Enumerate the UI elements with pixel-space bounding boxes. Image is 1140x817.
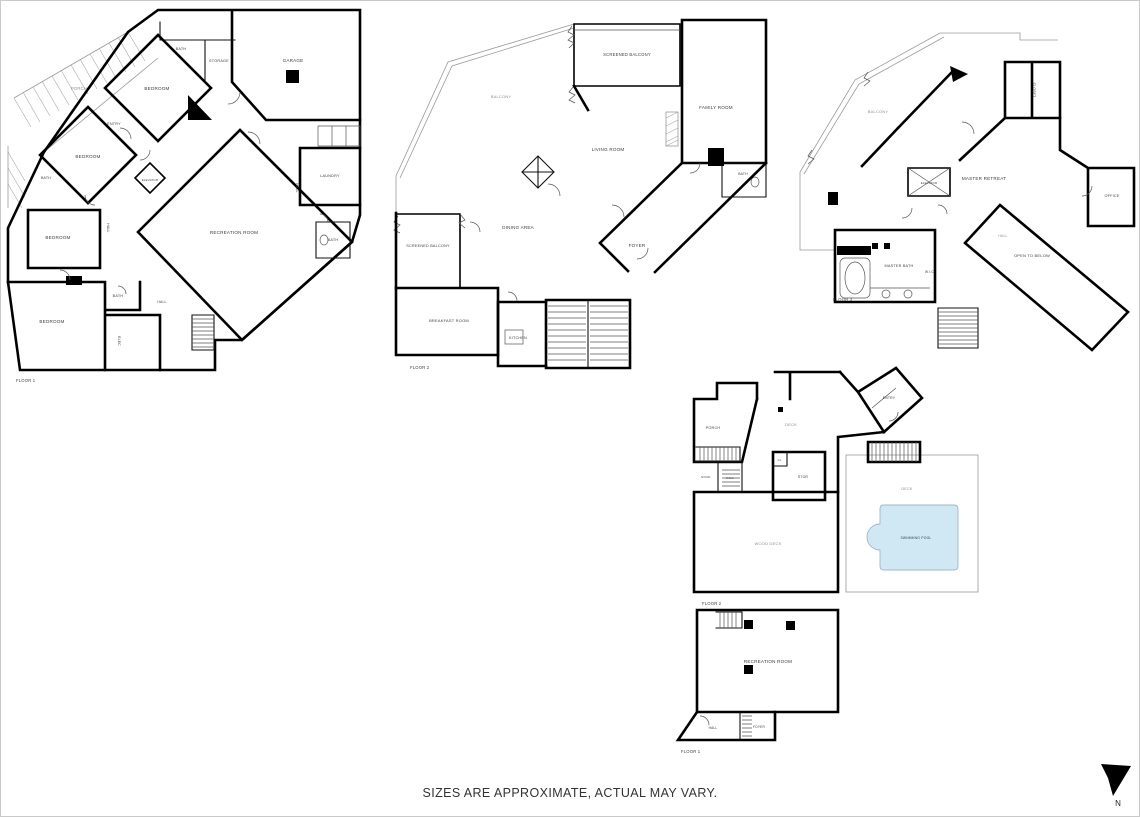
north-arrow-icon: N — [1101, 764, 1131, 808]
room-label: GARAGE — [283, 58, 304, 63]
room-label: PORCH — [706, 426, 721, 430]
room-label: HALL — [157, 300, 166, 304]
room-label: STORAGE — [209, 59, 229, 63]
room-label: SCREENED BALCONY — [406, 244, 450, 248]
room-label: ELEC — [117, 336, 121, 346]
room-label: DINING AREA — [502, 225, 535, 230]
room-label: ENTRY — [883, 396, 896, 400]
room-label: RECREATION ROOM — [210, 230, 258, 235]
room-label: BEDROOM — [75, 154, 100, 159]
room-label: FLOOR 1 — [16, 378, 36, 383]
north-label: N — [1115, 799, 1121, 808]
floorplan-sheet: PORCHBEDROOMBATHSTORAGEGARAGEENTRYBEDROO… — [0, 0, 1140, 817]
room-label: FAMILY ROOM — [699, 105, 733, 110]
room-label: LIVING ROOM — [592, 147, 625, 152]
room-label: ELEVATOR — [142, 178, 159, 182]
room-label: BALCONY — [868, 109, 889, 114]
room-label: RECREATION ROOM — [744, 659, 792, 664]
room-label: OFFICE — [1104, 194, 1119, 198]
room-label: STOR — [798, 475, 809, 479]
floor-plan-2: SCREENED BALCONYBALCONYFAMILY ROOMLIVING… — [394, 20, 766, 370]
floor-plan-3: BALCONYCLOSETELEVATORMASTER RETREATOFFIC… — [800, 33, 1134, 350]
room-label: BREAKFAST ROOM — [429, 318, 469, 323]
room-label: HALL — [709, 726, 718, 730]
room-label: ENTRY — [107, 122, 121, 126]
room-label: LAUNDRY — [320, 174, 340, 178]
room-label: WOOD DECK — [755, 541, 782, 546]
room-label: KITCHEN — [509, 336, 527, 340]
room-label: SCREENED BALCONY — [603, 52, 651, 57]
room-label: BATH — [738, 172, 748, 176]
room-label: MASTER BATH — [885, 264, 914, 268]
room-label: HALL — [106, 223, 110, 232]
room-label: STOR. — [701, 475, 711, 479]
room-label: PORCH — [71, 86, 87, 91]
room-label: OPEN TO BELOW — [1014, 253, 1050, 258]
room-label: MASTER RETREAT — [962, 176, 1006, 181]
room-label: FLOOR 3 — [833, 297, 853, 302]
disclaimer-text: SIZES ARE APPROXIMATE, ACTUAL MAY VARY. — [422, 786, 717, 800]
room-label: BATH — [113, 294, 124, 298]
room-label: BEDROOM — [45, 235, 70, 240]
room-label: HALL — [295, 183, 299, 192]
room-label: W.I.C. — [925, 270, 935, 274]
room-label: FLOOR 1 — [681, 749, 701, 754]
room-label: CL. — [778, 458, 783, 462]
room-label: FLOOR 2 — [702, 601, 722, 606]
room-label: FLOOR 2 — [410, 365, 430, 370]
floor-plan-1: PORCHBEDROOMBATHSTORAGEGARAGEENTRYBEDROO… — [8, 10, 360, 383]
room-label: FOYER — [629, 243, 646, 248]
room-label: BATH — [328, 238, 339, 242]
room-label: HALL — [998, 234, 1007, 238]
room-label: BEDROOM — [39, 319, 64, 324]
room-label: FOYER — [753, 725, 765, 729]
room-label: BALCONY — [491, 94, 512, 99]
room-label: SWIMMING POOL — [900, 536, 931, 540]
room-label: DECK — [785, 422, 797, 427]
room-label: ELEVATOR — [921, 181, 938, 185]
room-label: HALL — [726, 476, 734, 480]
floor-plan-4: PORCHDECKENTRYSTOR.HALLCL.STORWOOD DECKD… — [694, 368, 978, 606]
room-label: CLOSET — [1032, 83, 1036, 98]
room-label: DECK — [901, 487, 913, 491]
room-label: BATH — [41, 176, 51, 180]
floor-plan-5: RECREATION ROOMHALLFOYERFLOOR 1 — [678, 610, 838, 754]
room-label: BATH — [176, 47, 187, 51]
room-label: BEDROOM — [144, 86, 169, 91]
floorplan-canvas: PORCHBEDROOMBATHSTORAGEGARAGEENTRYBEDROO… — [0, 0, 1140, 817]
